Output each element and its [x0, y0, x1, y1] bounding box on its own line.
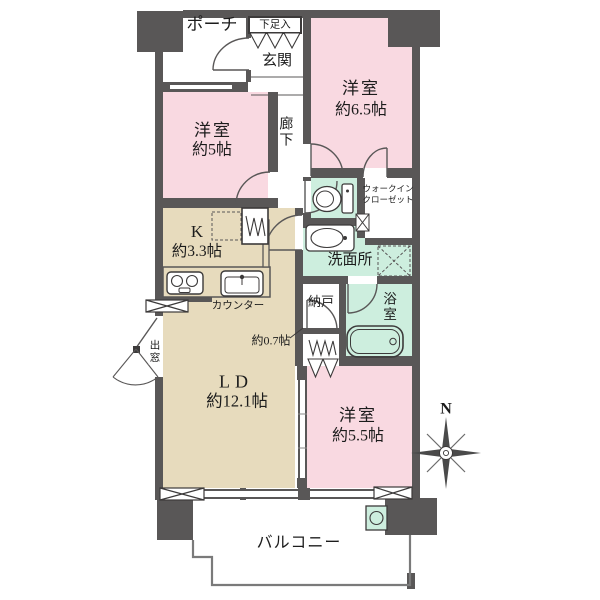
compass-north-label: N — [440, 402, 452, 419]
toilet-icon — [313, 184, 353, 213]
counter-label: カウンター — [212, 300, 265, 311]
shoe-shelf-icon — [250, 33, 300, 48]
balcony-label: バルコニー — [257, 536, 342, 553]
linework-layer — [0, 0, 600, 600]
corridor-label: 廊下 — [277, 116, 292, 148]
floor-plan: ポーチ 下足入 玄関 洋室 約6.5帖 洋室 約5帖 廊下 ウォークイン クロー… — [0, 0, 600, 600]
bedroom-northeast-size: 約6.5帖 — [335, 103, 387, 120]
bath-door-arc — [348, 284, 377, 313]
storage-leader-line — [290, 328, 303, 338]
wic-label-line2: クローゼット — [362, 196, 413, 205]
storage-size-label: 約0.7帖 — [251, 335, 290, 348]
closet-hanger-icon — [309, 340, 336, 355]
washroom-door-arc — [266, 215, 302, 250]
partition-ticks — [298, 414, 307, 448]
bedroom-west-size: 約5帖 — [192, 143, 232, 160]
kitchen-sink-icon — [221, 271, 263, 296]
entrance-label: 玄関 — [262, 54, 292, 70]
living-dining-label: LD — [219, 373, 253, 392]
washroom-label: 洗面所 — [327, 253, 372, 269]
living-dining-size: 約12.1帖 — [206, 392, 268, 409]
refrigerator-space — [212, 212, 241, 240]
washing-machine-space — [378, 246, 410, 276]
kitchen-size: 約3.3帖 — [172, 244, 222, 260]
water-heater-icon — [366, 506, 387, 530]
bay-window-label: 出窓 — [148, 340, 159, 365]
kitchen-closet — [242, 208, 268, 244]
bedroom-southeast-size: 約5.5帖 — [332, 429, 384, 446]
washbasin-icon — [306, 225, 354, 251]
entrance-door-arc — [213, 38, 249, 70]
walk-in-closet-door-arc — [363, 148, 387, 177]
bedroom-northeast-label: 洋室 — [342, 80, 380, 98]
stove-icon — [167, 272, 203, 294]
bedroom-northeast-door-arc — [311, 144, 343, 176]
bedroom-west-label: 洋室 — [194, 122, 232, 140]
wic-label-line1: ウォークイン — [362, 185, 413, 194]
porch-label: ポーチ — [187, 16, 238, 34]
bedroom-southeast-label: 洋室 — [339, 407, 377, 425]
storage-label: 納戸 — [308, 295, 334, 309]
bathtub-icon — [347, 326, 403, 357]
entrance-step-lines — [251, 77, 303, 95]
shoe-box-label: 下足入 — [259, 19, 291, 30]
compass-icon — [411, 417, 481, 489]
kitchen-label: K — [191, 223, 203, 241]
duct-box — [356, 214, 369, 231]
bath-label: 浴室 — [381, 292, 395, 323]
closet-folding-door-icon — [308, 359, 338, 377]
bedroom-west-door-arc — [236, 172, 270, 205]
